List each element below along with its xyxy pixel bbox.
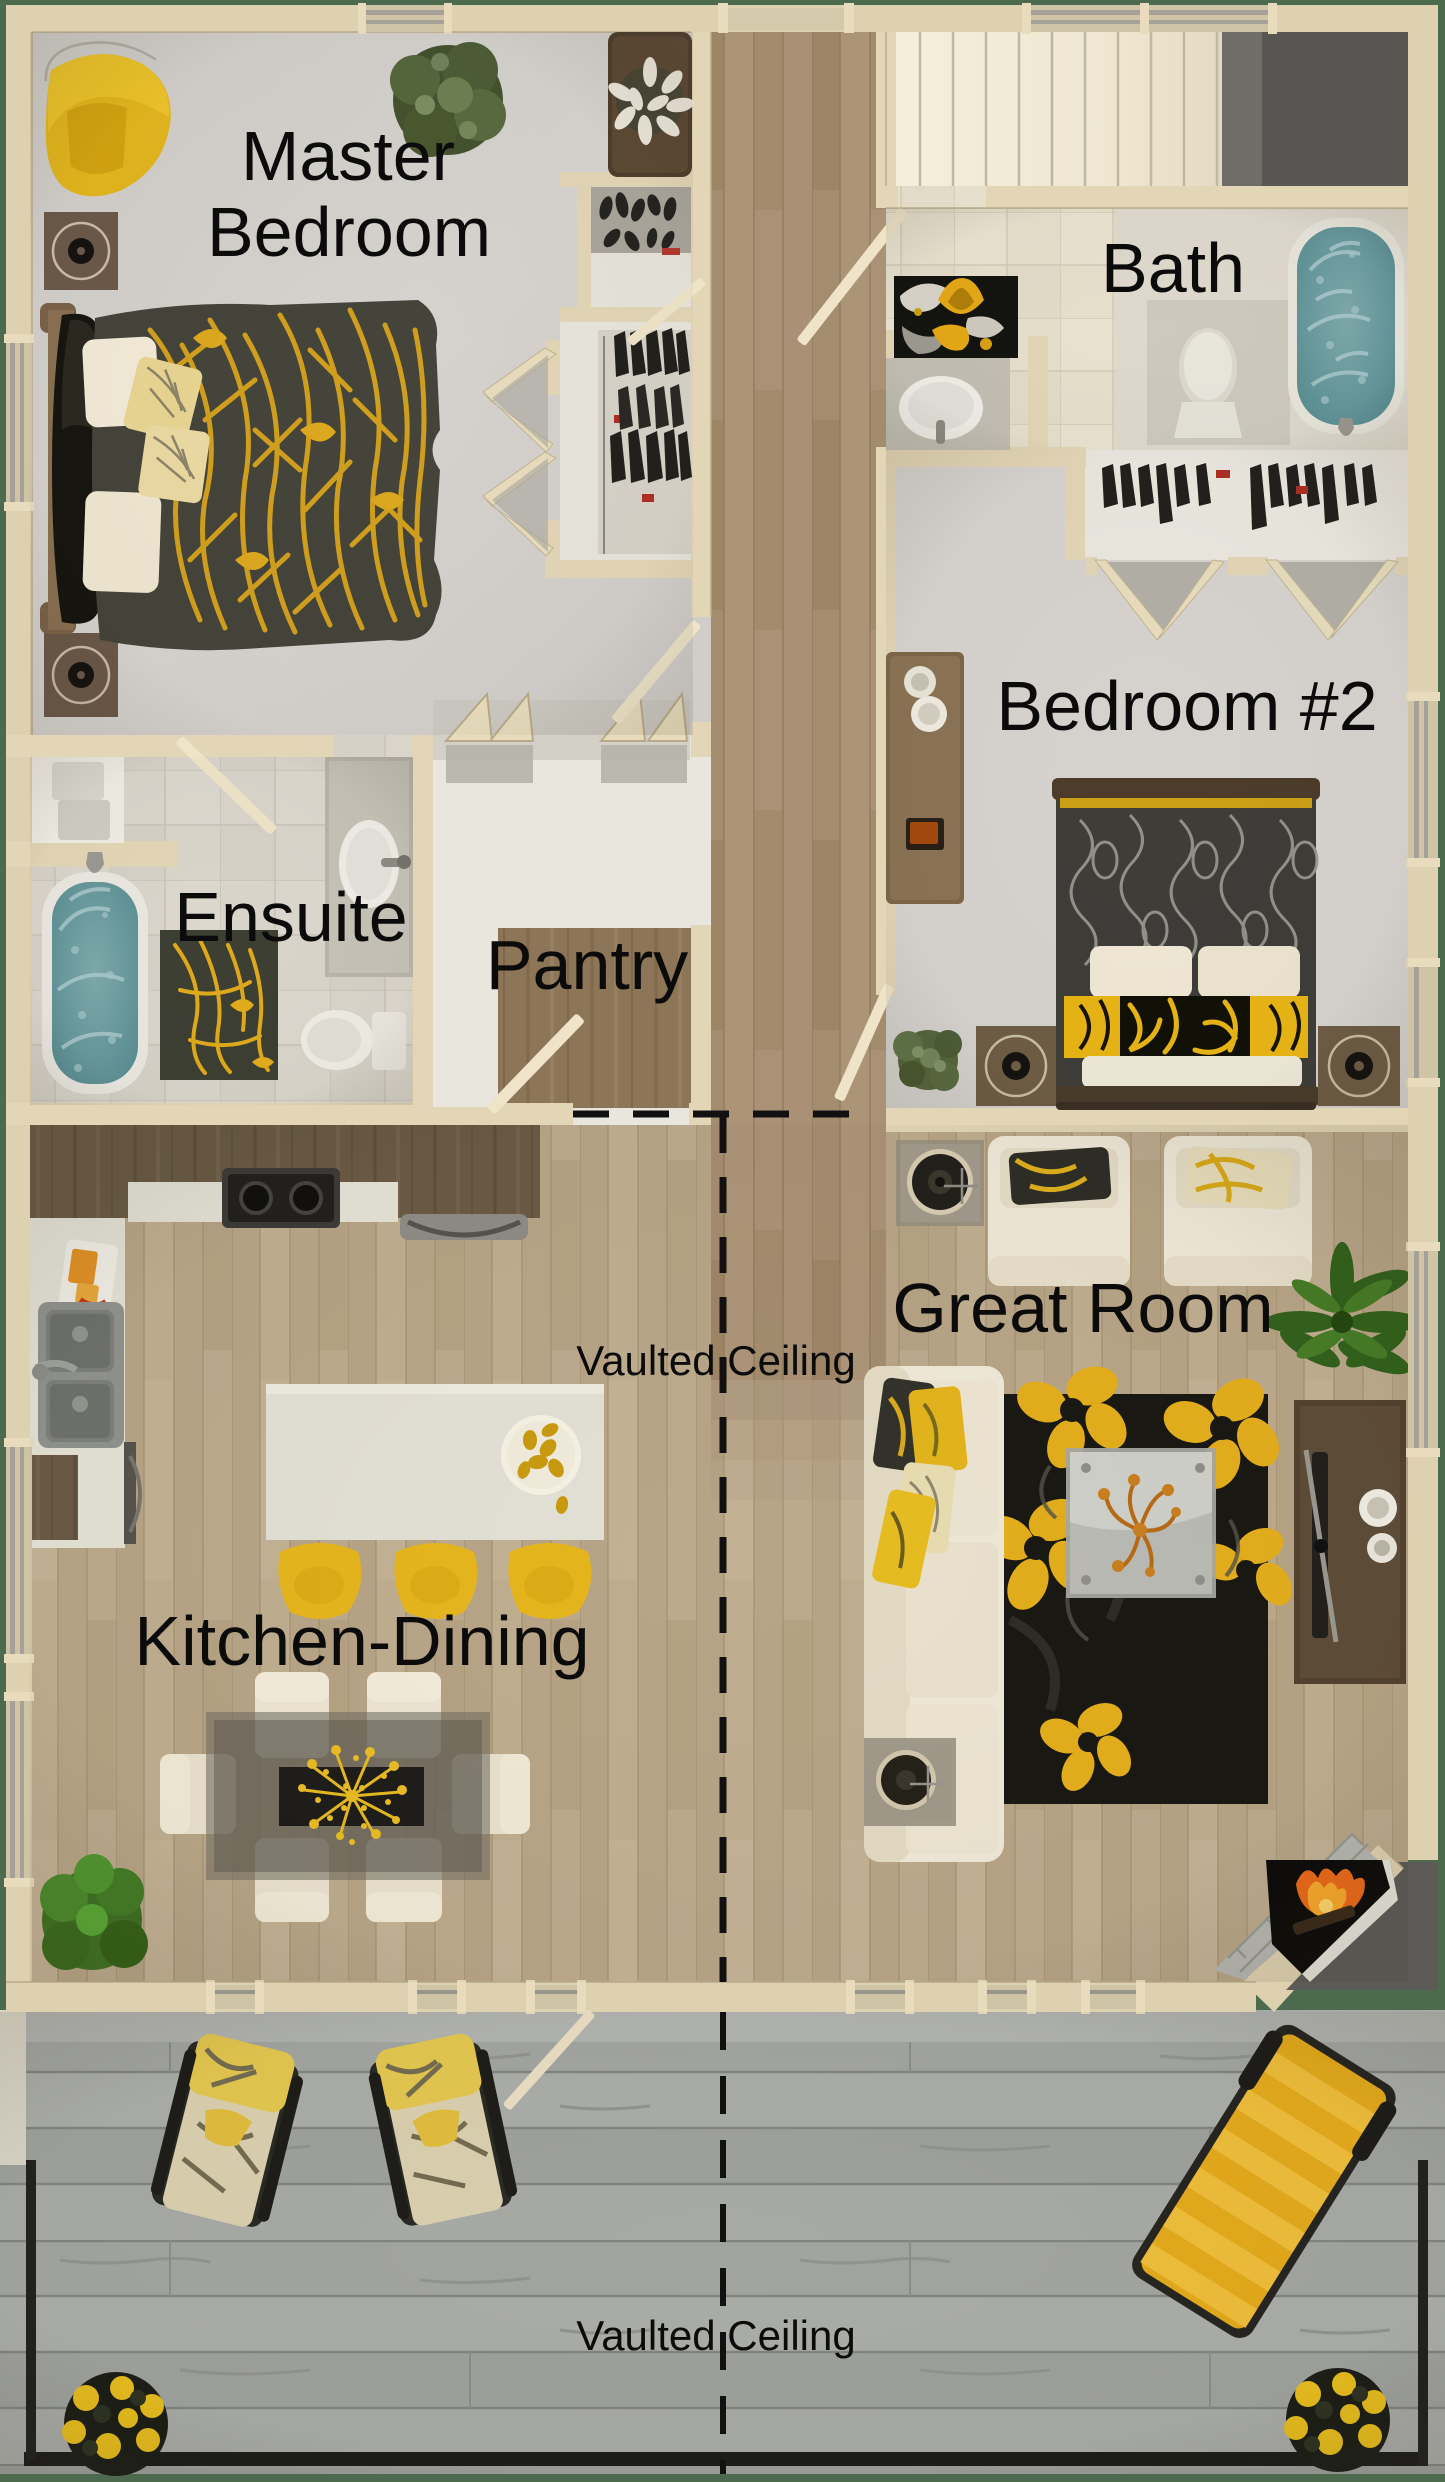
svg-text:Vaulted Ceiling: Vaulted Ceiling — [576, 2312, 855, 2359]
svg-text:Vaulted Ceiling: Vaulted Ceiling — [576, 1337, 855, 1384]
svg-text:Pantry: Pantry — [486, 926, 688, 1004]
svg-text:Kitchen-Dining: Kitchen-Dining — [134, 1602, 589, 1680]
svg-text:Bath: Bath — [1101, 229, 1245, 307]
svg-text:Master: Master — [241, 117, 455, 195]
svg-text:Great Room: Great Room — [892, 1269, 1273, 1347]
svg-text:Ensuite: Ensuite — [174, 878, 407, 956]
svg-text:Bedroom: Bedroom — [207, 193, 491, 271]
svg-text:Bedroom #2: Bedroom #2 — [996, 667, 1377, 745]
